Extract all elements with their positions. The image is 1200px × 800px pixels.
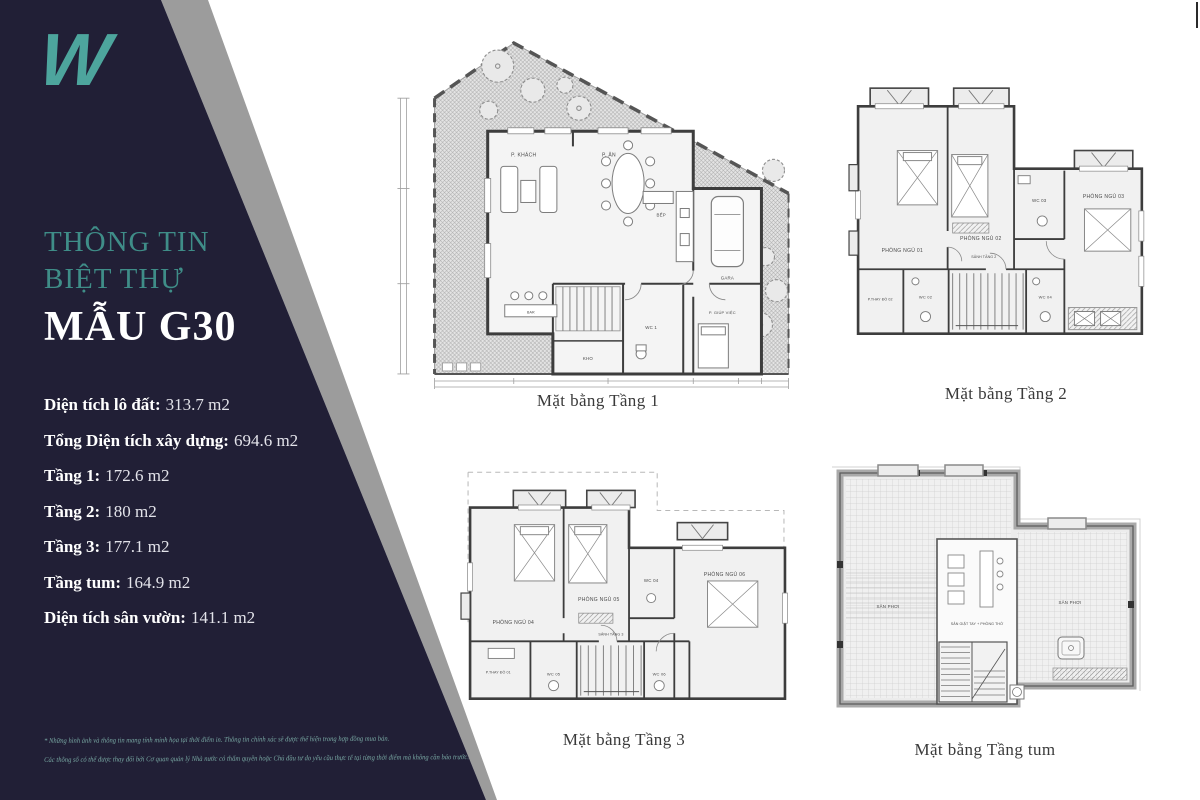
room-label-ngu01: PHÒNG NGỦ 01 xyxy=(882,247,924,254)
room-label-wc1: WC 1 xyxy=(645,325,657,330)
garage-car xyxy=(711,196,743,266)
stat-value: 164.9 m2 xyxy=(126,573,190,592)
floorplan-level3: PHÒNG NGỦ 04 PHÒNG NGỦ 05 WC 04 PHÒNG NG… xyxy=(458,462,790,750)
plan-caption-level3: Mặt bằng Tầng 3 xyxy=(458,730,790,750)
room-label-thaydo02: P.THAY ĐỒ 02 xyxy=(868,296,893,301)
brand-logo: W xyxy=(36,20,114,100)
stat-row: Tầng 1:172.6 m2 xyxy=(44,465,298,487)
stat-row: Tầng 2:180 m2 xyxy=(44,501,298,523)
model-name: MẪU G30 xyxy=(44,303,236,351)
disclaimer-line2: Các thông số có thể được thay đổi bởi Cơ… xyxy=(44,747,469,769)
room-label-ngu02: PHÒNG NGỦ 02 xyxy=(960,235,1002,242)
stat-value: 177.1 m2 xyxy=(105,537,169,556)
stat-label: Tầng 3: xyxy=(44,537,100,556)
building-footprint: PHÒNG NGỦ 01 PHÒNG NGỦ 02 WC 03 PHÒNG NG… xyxy=(849,104,1144,334)
room-label-sanphoi-right: SÂN PHƠI xyxy=(1059,600,1082,605)
stat-label: Diện tích sân vườn: xyxy=(44,608,186,627)
stat-label: Diện tích lô đất: xyxy=(44,395,161,414)
skylight xyxy=(1058,637,1084,659)
room-label-wc02: WC 02 xyxy=(919,294,933,299)
room-label-wc04: WC 04 xyxy=(644,578,659,583)
room-label-sanphoi-left: SÂN PHƠI xyxy=(877,604,900,609)
floorplan-rooftop-drawing: SÂN PHƠI SÂN GIẶT TAY + PHÒNG THỜ SÂN PH… xyxy=(820,460,1150,722)
floorplan-level3-drawing: PHÒNG NGỦ 04 PHÒNG NGỦ 05 WC 04 PHÒNG NG… xyxy=(458,462,790,714)
room-label-giupviec: P. GIÚP VIỆC xyxy=(709,310,736,315)
washing-machine xyxy=(1010,685,1024,699)
stat-row: Tổng Diện tích xây dựng:694.6 m2 xyxy=(44,430,298,452)
terrace-balcony-strip xyxy=(1053,668,1127,680)
room-label-bar: BAR xyxy=(527,310,535,314)
balcony xyxy=(1068,308,1136,330)
floorplan-rooftop: SÂN PHƠI SÂN GIẶT TAY + PHÒNG THỜ SÂN PH… xyxy=(820,460,1150,760)
stat-label: Tầng tum: xyxy=(44,573,121,592)
disclaimer: * Những hình ảnh và thông tin mang tính … xyxy=(44,728,469,769)
stat-row: Tầng tum:164.9 m2 xyxy=(44,572,298,594)
stat-value: 172.6 m2 xyxy=(105,466,169,485)
room-label-ngu04: PHÒNG NGỦ 04 xyxy=(493,619,535,626)
floorplan-level1: P. KHÁCH P. ĂN BẾP GARA KHO WC 1 P. GIÚP… xyxy=(392,28,804,411)
sidebar-title-line1: THÔNG TIN xyxy=(44,224,236,261)
room-label-gara: GARA xyxy=(721,276,734,281)
stat-value: 694.6 m2 xyxy=(234,431,298,450)
page-edge-mark xyxy=(1196,2,1198,28)
stat-label: Tổng Diện tích xây dựng: xyxy=(44,431,229,450)
sidebar-title-line2: BIỆT THỰ xyxy=(44,261,236,298)
plan-caption-level2: Mặt bằng Tầng 2 xyxy=(845,384,1167,404)
plan-caption-level1: Mặt bằng Tầng 1 xyxy=(392,391,804,411)
room-label-wc03: WC 03 xyxy=(1032,198,1047,203)
room-label-wc04: WC 04 xyxy=(1039,294,1053,299)
room-label-sanh2: SẢNH TẦNG 2 xyxy=(971,254,996,259)
garden-path-pads xyxy=(443,363,481,371)
wardrobe xyxy=(579,613,613,623)
room-label-ngu03: PHÒNG NGỦ 03 xyxy=(1083,193,1125,200)
room-label-thaydo01: P.THAY ĐỒ 01 xyxy=(486,670,511,675)
plan-caption-rooftop: Mặt bằng Tầng tum xyxy=(820,740,1150,760)
stat-value: 180 m2 xyxy=(105,502,156,521)
room-label-giat-tho: SÂN GIẶT TAY + PHÒNG THỜ xyxy=(951,621,1004,626)
floorplan-level1-drawing: P. KHÁCH P. ĂN BẾP GARA KHO WC 1 P. GIÚP… xyxy=(392,28,804,389)
room-label-ngu05: PHÒNG NGỦ 05 xyxy=(578,596,620,603)
stat-row: Diện tích lô đất:313.7 m2 xyxy=(44,394,298,416)
stat-label: Tầng 2: xyxy=(44,502,100,521)
stats-list: Diện tích lô đất:313.7 m2 Tổng Diện tích… xyxy=(44,394,298,643)
room-label-bep: BẾP xyxy=(656,212,665,218)
room-label-an: P. ĂN xyxy=(602,151,616,158)
right-terrace xyxy=(1017,532,1127,680)
wardrobe xyxy=(953,223,989,233)
room-label-ngu06: PHÒNG NGỦ 06 xyxy=(704,571,746,578)
stat-value: 141.1 m2 xyxy=(191,608,255,627)
exterior-bay-windows xyxy=(461,593,470,619)
stat-row: Diện tích sân vườn:141.1 m2 xyxy=(44,607,298,629)
stat-row: Tầng 3:177.1 m2 xyxy=(44,536,298,558)
room-label-sanh3: SẢNH TẦNG 3 xyxy=(598,631,623,636)
stat-label: Tầng 1: xyxy=(44,466,100,485)
page: W THÔNG TIN BIỆT THỰ MẪU G30 Diện tích l… xyxy=(0,0,1200,800)
building-footprint: PHÒNG NGỦ 04 PHÒNG NGỦ 05 WC 04 PHÒNG NG… xyxy=(461,505,787,699)
room-label-khach: P. KHÁCH xyxy=(511,151,536,158)
staircase xyxy=(939,642,1007,702)
room-label-wc06: WC 06 xyxy=(653,672,667,677)
floorplan-level2: PHÒNG NGỦ 01 PHÒNG NGỦ 02 WC 03 PHÒNG NG… xyxy=(845,80,1167,404)
sidebar-title-block: THÔNG TIN BIỆT THỰ MẪU G30 xyxy=(44,224,236,351)
room-label-wc05: WC 05 xyxy=(547,672,561,677)
stat-value: 313.7 m2 xyxy=(166,395,230,414)
floorplan-level2-drawing: PHÒNG NGỦ 01 PHÒNG NGỦ 02 WC 03 PHÒNG NG… xyxy=(845,80,1167,372)
room-label-kho: KHO xyxy=(583,356,594,361)
